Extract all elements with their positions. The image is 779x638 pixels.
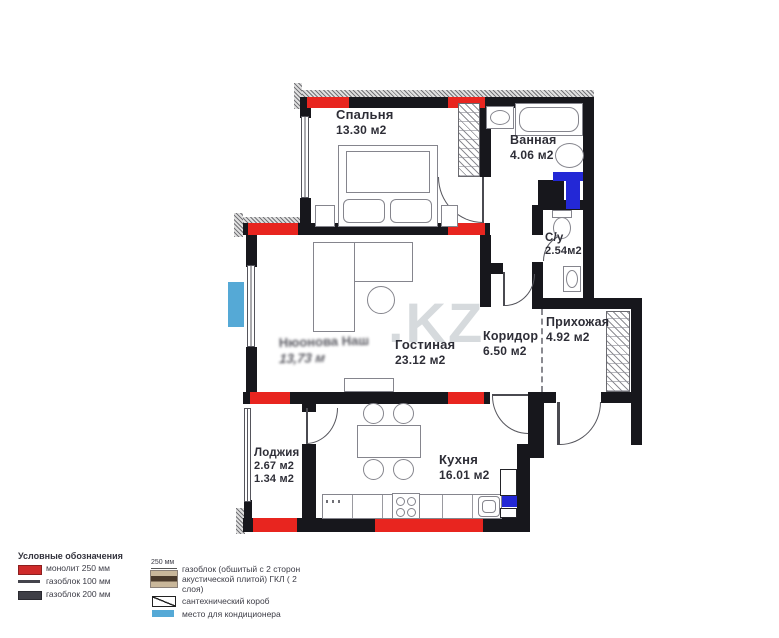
legend-swatch-acoustic	[150, 570, 178, 588]
monolith-bottom-kitchen	[375, 518, 483, 532]
room-name: Ванная	[510, 133, 557, 148]
room-area-2: 1.34 м2	[254, 473, 299, 486]
label-loggia: Лоджия 2.67 м2 1.34 м2	[254, 446, 299, 487]
ac-place-living	[228, 282, 244, 327]
monolith-mid-1	[248, 223, 298, 235]
wall-right-upper	[583, 97, 594, 298]
wall-living-left-lower	[246, 347, 257, 393]
sanitary-blue-v	[566, 181, 580, 209]
burner-4	[407, 508, 416, 517]
exterior-hatch-top	[300, 90, 594, 97]
burner-3	[396, 508, 405, 517]
kitchen-sink-basin	[482, 500, 496, 513]
room-area: 2.67 м2	[254, 460, 299, 473]
wall-loggia-divider	[302, 444, 316, 518]
room-area: 4.06 м2	[510, 148, 557, 163]
legend-swatch-monolith	[18, 565, 42, 575]
ghost-line-2: 13,73 м	[279, 349, 371, 368]
floor-plan: Спальня 13.30 м2 Ванная 4.06 м2 С/у 2.54…	[0, 0, 779, 638]
ac-place-kitchen	[500, 496, 517, 507]
opening-dashed	[541, 309, 543, 392]
closet-hallway	[606, 311, 630, 392]
wardrobe-bedroom	[458, 103, 480, 177]
door-arc-entrance	[560, 402, 601, 445]
wall-bottom-mid	[297, 518, 375, 532]
pillow-right	[390, 199, 432, 223]
chair-1	[363, 403, 384, 424]
nightstand-left	[315, 205, 335, 227]
wall-bedroom-left-bottom	[300, 198, 311, 223]
room-area: 16.01 м2	[439, 468, 490, 483]
wall-wc-left-upper	[532, 205, 543, 235]
burner-1	[396, 497, 405, 506]
wall-hallway-top	[532, 298, 642, 309]
wall-hallway-bottom-left	[528, 392, 556, 403]
tv-stand	[344, 378, 394, 392]
bed-mattress	[346, 151, 430, 193]
wall-kitchen-right-b	[517, 458, 530, 532]
floor-plan-page: Спальня 13.30 м2 Ванная 4.06 м2 С/у 2.54…	[0, 0, 779, 638]
bathtub-inner	[519, 107, 579, 132]
pillow-left	[343, 199, 385, 223]
room-name: С/у	[545, 231, 582, 245]
legend-label-gasblock-100: газоблок 100 мм	[46, 576, 111, 586]
wall-bottom-left-end	[243, 518, 253, 532]
exterior-hatch-left	[234, 213, 243, 237]
room-name: Лоджия	[254, 446, 299, 460]
legend-title: Условные обозначения	[18, 551, 123, 561]
label-living: Гостиная 23.12 м2	[395, 337, 455, 367]
legend-label-monolith: монолит 250 мм	[46, 563, 110, 573]
ghost-label: Нюонова Наш 13,73 м	[279, 333, 370, 368]
sink-bathroom-basin	[490, 110, 510, 125]
legend-label-acoustic: газоблок (обшитый с 2 сторон акустическо…	[182, 564, 310, 594]
room-name: Спальня	[336, 107, 394, 123]
legend-swatch-ac-place	[152, 610, 174, 617]
legend-swatch-gasblock-200	[18, 591, 42, 600]
counter-dots	[326, 500, 340, 503]
room-name: Кухня	[439, 452, 490, 468]
legend-swatch-sanitary-box	[152, 596, 176, 607]
sanitary-box-kitchen-a	[500, 469, 517, 496]
room-area: 23.12 м2	[395, 353, 455, 368]
label-corridor: Коридор 6.50 м2	[483, 329, 538, 359]
sofa-vertical	[313, 242, 355, 332]
window-living	[247, 265, 255, 347]
room-name: Гостиная	[395, 337, 455, 353]
legend-label-ac-place: место для кондиционера	[182, 609, 281, 619]
window-loggia	[244, 408, 251, 502]
room-area: 6.50 м2	[483, 344, 538, 359]
sanitary-box-kitchen-b	[500, 508, 517, 518]
legend-label-gasblock-200: газоблок 200 мм	[46, 589, 111, 599]
sink-wc-basin	[566, 270, 578, 288]
room-area: 13.30 м2	[336, 123, 394, 138]
wall-hallway-bottom-right	[601, 392, 642, 403]
room-area: 2.54м2	[545, 245, 582, 258]
wall-bottom-right	[483, 518, 517, 532]
wall-bath-bottom-a	[483, 263, 503, 274]
wall-living-left-upper	[246, 235, 257, 267]
window-bedroom	[301, 116, 309, 198]
label-wc: С/у 2.54м2	[545, 231, 582, 258]
legend-size-note: 250 мм	[151, 559, 174, 566]
legend: Условные обозначения монолит 250 мм газо…	[15, 549, 345, 634]
monolith-low-2	[448, 392, 484, 404]
label-bedroom: Спальня 13.30 м2	[336, 107, 394, 137]
legend-size-tick	[151, 568, 177, 569]
room-area: 4.92 м2	[546, 330, 609, 345]
sanitary-blue-h	[553, 172, 583, 181]
label-hallway: Прихожая 4.92 м2	[546, 315, 609, 345]
wall-shaft	[538, 180, 564, 202]
room-name: Прихожая	[546, 315, 609, 330]
vanity-basin	[555, 143, 584, 168]
legend-label-sanitary-box: сантехнический короб	[182, 596, 270, 606]
room-name: Коридор	[483, 329, 538, 344]
monolith-bottom-loggia	[253, 518, 297, 532]
wall-loggia-corner	[244, 500, 252, 518]
legend-swatch-gasblock-100	[18, 580, 40, 583]
wall-kitchen-jog	[517, 444, 544, 458]
wall-right-lower	[631, 309, 642, 445]
label-kitchen: Кухня 16.01 м2	[439, 452, 490, 482]
burner-2	[407, 497, 416, 506]
dining-table	[357, 425, 421, 458]
monolith-low-1	[250, 392, 290, 404]
chair-4	[393, 459, 414, 480]
nightstand-right	[441, 205, 458, 227]
chair-2	[393, 403, 414, 424]
label-bathroom: Ванная 4.06 м2	[510, 133, 557, 163]
chair-3	[363, 459, 384, 480]
